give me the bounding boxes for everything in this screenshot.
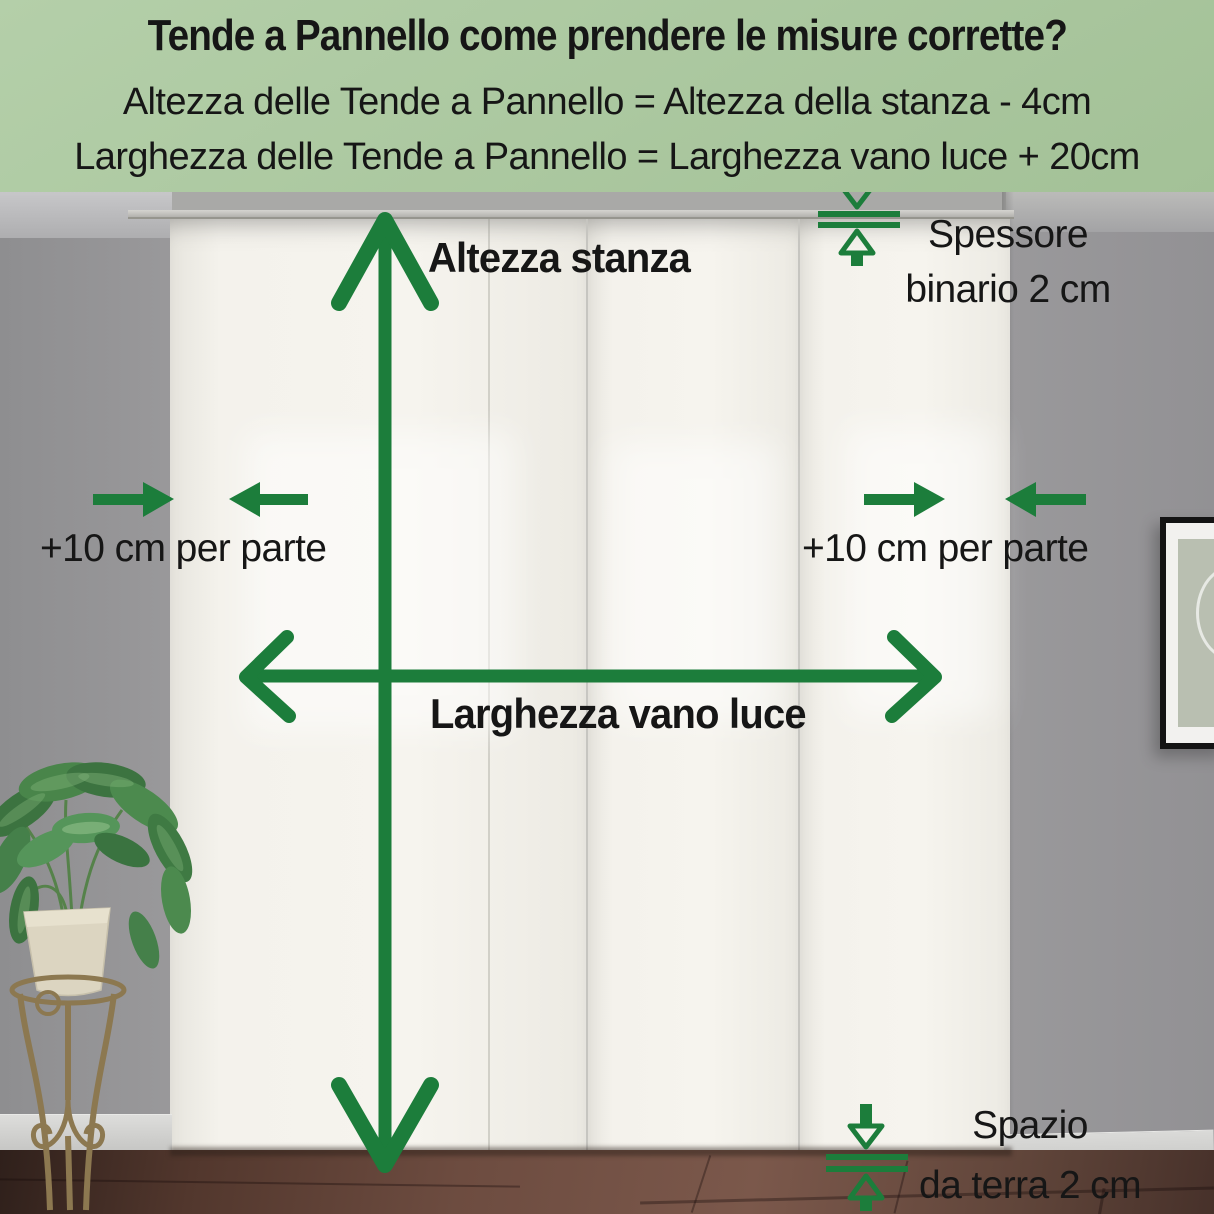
picture-art (1178, 539, 1214, 727)
framed-picture (1160, 517, 1214, 749)
rail-thickness-line1: Spessore (878, 207, 1138, 262)
page-title: Tende a Pannello come prendere le misure… (147, 11, 1066, 61)
room-height-label: Altezza stanza (428, 234, 690, 282)
formula-width: Larghezza delle Tende a Pannello = Largh… (74, 130, 1139, 185)
curtain-floor-shadow (170, 1147, 1012, 1156)
floor-gap-line2: da terra 2 cm (900, 1156, 1160, 1214)
window-light-reflection (245, 432, 515, 732)
rail-thickness-label: Spessore binario 2 cm (878, 207, 1138, 317)
window-light-reflection (610, 442, 780, 722)
window-light-reflection (845, 427, 995, 717)
header: Tende a Pannello come prendere le misure… (0, 0, 1214, 192)
floor-gap-label: Spazio da terra 2 cm (900, 1096, 1160, 1214)
potted-plant (0, 740, 206, 1214)
floor-gap-line1: Spazio (900, 1096, 1160, 1156)
formula-height: Altezza delle Tende a Pannello = Altezza… (123, 75, 1091, 130)
rail-thickness-line2: binario 2 cm (878, 262, 1138, 317)
plant-stand (12, 977, 124, 1210)
left-margin-label: +10 cm per parte (40, 527, 326, 571)
opening-width-label: Larghezza vano luce (430, 690, 806, 738)
curtain-measuring-infographic: Tende a Pannello come prendere le misure… (0, 0, 1214, 1214)
right-margin-label: +10 cm per parte (802, 527, 1088, 571)
plant-pot (24, 908, 110, 996)
